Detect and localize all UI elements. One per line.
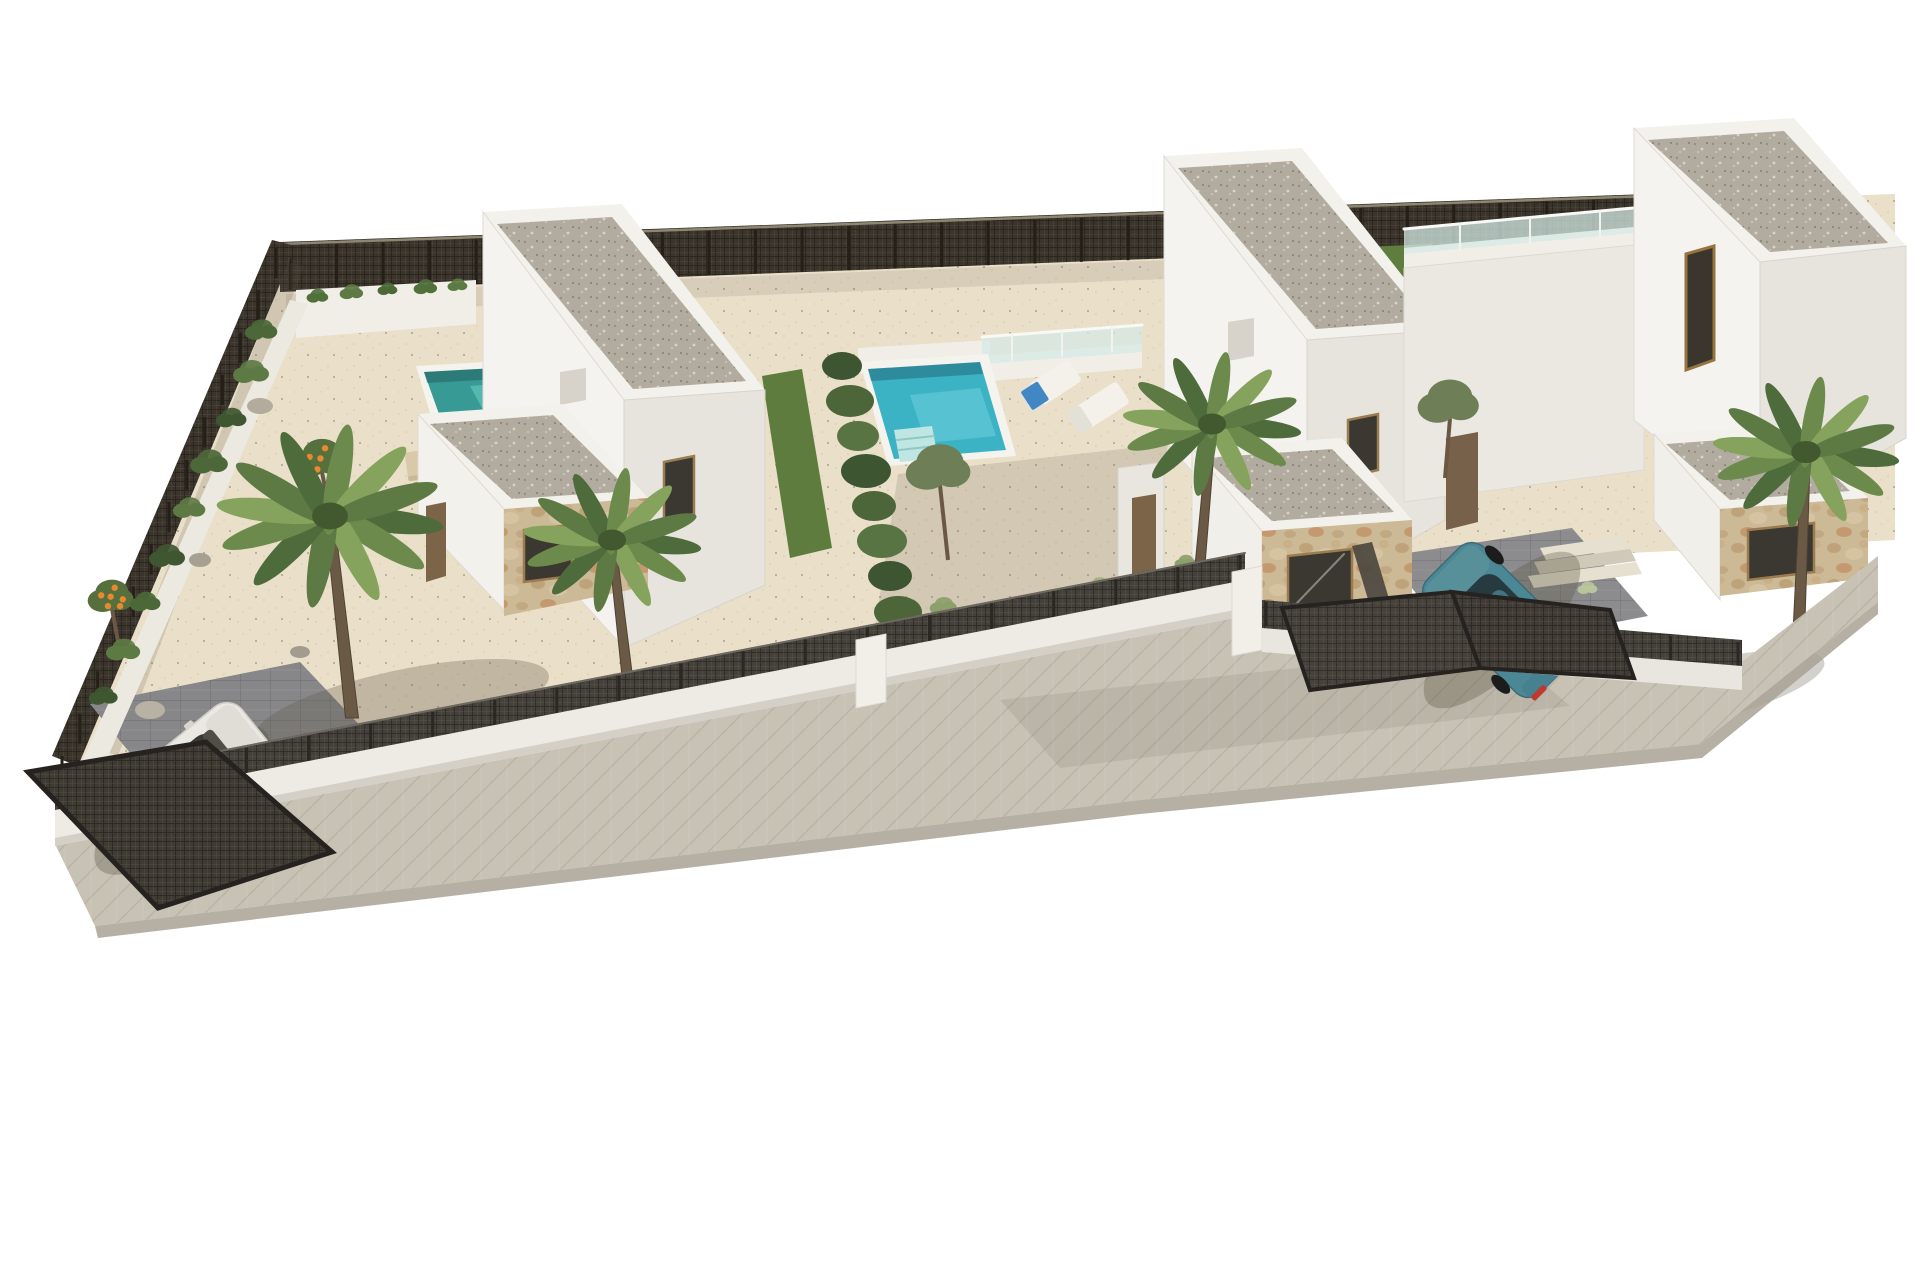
wall-pier-mid: [856, 634, 886, 708]
shrub-fence-2-tuft: [240, 360, 264, 378]
back-fence-posts-post: [847, 226, 850, 270]
back-fence-posts-post: [707, 231, 710, 275]
front-mesh-posts-post: [369, 724, 372, 752]
front-mesh-posts-post: [307, 736, 310, 764]
shrub-wall-top-5-tuft: [451, 278, 464, 288]
hedge-divider-7: [868, 561, 912, 591]
gate-pier-right: [1232, 566, 1262, 656]
shrub-fence-7-tuft: [136, 592, 156, 607]
front-mesh-posts-post: [245, 748, 248, 776]
villa1-wing-door: [426, 502, 446, 582]
back-fence-posts-post: [940, 223, 943, 267]
citrus-tree-2-fruit: [107, 593, 113, 599]
rock-3: [135, 701, 165, 719]
shrub-fence-5-tuft: [179, 497, 201, 513]
right-mesh-posts-post: [1265, 602, 1268, 626]
back-fence-posts-post: [382, 243, 385, 287]
shrub-fence-3-tuft: [222, 408, 242, 423]
citrus-tree-2-fruit: [105, 603, 111, 609]
rock-1: [247, 398, 273, 414]
back-fence-posts-post: [428, 241, 431, 285]
left-fence-posts-post: [221, 375, 224, 405]
back-fence-posts-post: [475, 239, 478, 283]
hedge-divider-6: [857, 524, 907, 558]
villa2-tower-window-side: [1228, 318, 1254, 361]
back-fence-posts-post: [801, 228, 804, 272]
right-mesh-posts-post: [1669, 636, 1672, 660]
front-mesh-posts-post: [680, 663, 683, 691]
shrub-wall-top-1-tuft: [311, 289, 325, 300]
villa3-terrace-door: [1446, 432, 1478, 530]
olive-tree-villa3-crown: [1428, 380, 1473, 415]
front-mesh-posts-post: [493, 700, 496, 728]
front-mesh-posts-post: [928, 615, 931, 643]
palm-tree-4-crown-center: [1791, 441, 1820, 463]
back-fence-posts-post: [987, 221, 990, 265]
shrub-fence-4-tuft: [197, 449, 222, 468]
front-mesh-posts-post: [1052, 591, 1055, 619]
front-mesh-posts-post: [617, 676, 620, 704]
back-fence-posts-post: [1080, 218, 1083, 262]
right-mesh-posts-post: [1737, 642, 1740, 666]
shrub-wall-top-4-tuft: [418, 279, 434, 291]
shrub-wall-top-2-tuft: [344, 284, 360, 296]
back-fence-posts-post: [335, 244, 338, 288]
shrub-wall-top-3-tuft: [381, 282, 394, 292]
olive-tree-villa2-crown: [916, 444, 963, 480]
citrus-tree-2-fruit: [117, 603, 123, 609]
rock-4: [290, 646, 310, 658]
shrub-fence-6-tuft: [156, 544, 180, 562]
left-fence-posts-post: [185, 460, 188, 490]
palm-tree-1-crown-center: [312, 503, 348, 530]
citrus-tree-1-fruit: [322, 445, 328, 451]
left-fence-posts-post: [275, 248, 278, 278]
shrub-fence-1-tuft: [251, 319, 273, 335]
back-fence-posts-post: [894, 224, 897, 268]
citrus-tree-2-fruit: [120, 596, 126, 602]
hedge-divider-2: [826, 385, 874, 417]
front-mesh-posts-post: [1176, 567, 1179, 595]
architectural-render: [0, 0, 1920, 1280]
left-fence-posts-post: [239, 333, 242, 363]
back-fence-posts-post: [1033, 220, 1036, 264]
front-mesh-posts-post: [431, 712, 434, 740]
villa1-tower-window-side: [560, 368, 586, 405]
scene-layers: [28, 118, 1906, 938]
citrus-tree-1-fruit: [317, 455, 323, 461]
citrus-tree-2-fruit: [98, 592, 104, 598]
left-fence-posts-post: [257, 290, 260, 320]
shrub-fence-9-tuft: [94, 686, 113, 700]
front-mesh-posts-post: [990, 603, 993, 631]
left-fence-posts-post: [78, 714, 81, 744]
desert-plant-3-tuft: [1581, 581, 1594, 591]
palm-tree-2-crown-center: [598, 529, 626, 550]
front-mesh-posts-post: [804, 639, 807, 667]
back-fence-posts-post: [1126, 216, 1129, 260]
render-viewport: [0, 0, 1920, 1280]
villa3-terrace-wall: [1404, 244, 1644, 502]
front-mesh-posts-post: [555, 688, 558, 716]
hedge-divider-3: [837, 421, 879, 451]
palm-tree-3-crown-center: [1198, 413, 1226, 434]
left-fence-posts-post: [168, 502, 171, 532]
hedge-divider-4: [841, 454, 891, 488]
rock-2: [189, 553, 211, 567]
shrub-fence-8-tuft: [113, 639, 136, 656]
hedge-divider-1: [822, 352, 862, 380]
villa2-door: [1132, 494, 1156, 577]
citrus-tree-2-fruit: [112, 585, 118, 591]
agave-1-tuft: [935, 597, 953, 611]
front-mesh-posts-post: [742, 651, 745, 679]
back-fence-posts-post: [754, 229, 757, 273]
left-fence-posts-post: [203, 417, 206, 447]
front-mesh-posts-post: [1114, 579, 1117, 607]
hedge-divider-5: [852, 491, 896, 521]
villa3-tower-tall-window: [1686, 246, 1714, 370]
